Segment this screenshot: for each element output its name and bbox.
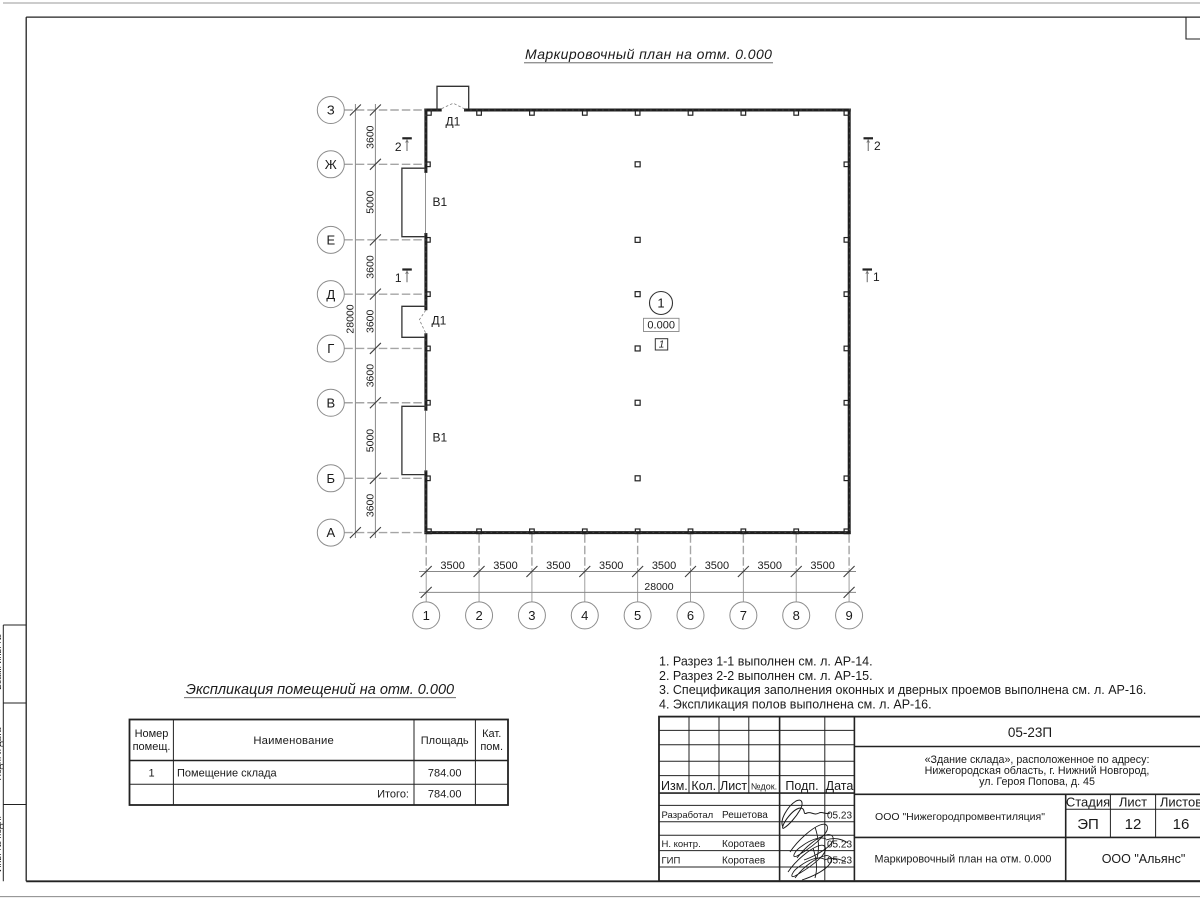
svg-text:6: 6	[687, 608, 694, 623]
svg-text:пом.: пом.	[480, 741, 503, 753]
svg-text:5000: 5000	[365, 429, 377, 453]
svg-text:ГИП: ГИП	[662, 855, 681, 866]
svg-text:5000: 5000	[365, 190, 377, 214]
svg-text:В1: В1	[433, 431, 448, 445]
svg-text:Стадия: Стадия	[1066, 795, 1110, 810]
svg-text:9: 9	[845, 608, 852, 623]
svg-text:28000: 28000	[644, 581, 673, 593]
svg-text:Помещение склада: Помещение склада	[177, 768, 278, 780]
svg-text:Кат.: Кат.	[482, 728, 501, 740]
svg-text:Е: Е	[326, 232, 335, 247]
svg-text:Д1: Д1	[432, 314, 447, 328]
svg-text:Разработал: Разработал	[662, 810, 714, 821]
svg-text:3600: 3600	[365, 309, 377, 333]
svg-text:Маркировочный план на отм. 0.0: Маркировочный план на отм. 0.000	[875, 854, 1052, 866]
svg-text:Лист: Лист	[720, 779, 747, 793]
svg-text:3500: 3500	[546, 560, 570, 572]
svg-text:Дата: Дата	[826, 779, 854, 793]
svg-text:Д1: Д1	[446, 115, 461, 129]
svg-text:Площадь: Площадь	[421, 735, 469, 747]
svg-text:Маркировочный план на отм. 0.0: Маркировочный план на отм. 0.000	[525, 46, 772, 62]
svg-text:3500: 3500	[758, 560, 782, 572]
svg-text:Н. контр.: Н. контр.	[662, 839, 701, 850]
svg-text:4. Экспликация полов выполнена: 4. Экспликация полов выполнена см. л. АР…	[659, 697, 932, 711]
svg-text:3500: 3500	[810, 560, 834, 572]
svg-text:3600: 3600	[365, 125, 377, 149]
svg-text:Ж: Ж	[325, 157, 337, 172]
svg-text:1: 1	[659, 340, 665, 351]
svg-text:8: 8	[793, 608, 800, 623]
svg-text:ООО "Нижегородпромвентиляция": ООО "Нижегородпромвентиляция"	[875, 811, 1045, 823]
svg-text:№док.: №док.	[751, 781, 777, 791]
svg-text:3500: 3500	[599, 560, 623, 572]
svg-text:Экспликация помещений на отм.: Экспликация помещений на отм. 0.000	[186, 682, 454, 698]
svg-text:Подп. и дата: Подп. и дата	[0, 727, 3, 780]
svg-text:А: А	[326, 525, 335, 540]
svg-text:3600: 3600	[365, 255, 377, 279]
svg-text:3600: 3600	[365, 364, 377, 388]
svg-text:помещ.: помещ.	[133, 741, 171, 753]
svg-text:Коротаев: Коротаев	[722, 855, 765, 866]
svg-text:Взам. инв. №: Взам. инв. №	[0, 634, 3, 690]
svg-text:2: 2	[475, 608, 482, 623]
svg-text:28000: 28000	[345, 304, 357, 333]
svg-text:3500: 3500	[652, 560, 676, 572]
svg-text:Д: Д	[326, 287, 335, 302]
svg-text:Изм.: Изм.	[661, 779, 688, 793]
svg-text:Решетова: Решетова	[722, 810, 768, 821]
svg-text:Подп.: Подп.	[785, 779, 818, 793]
svg-text:Г: Г	[327, 341, 334, 356]
svg-text:3500: 3500	[440, 560, 464, 572]
svg-text:Номер: Номер	[135, 728, 169, 740]
svg-text:784.00: 784.00	[428, 789, 462, 801]
svg-text:Лист: Лист	[1119, 795, 1147, 810]
svg-text:784.00: 784.00	[428, 768, 462, 780]
svg-text:1. Разрез 1-1 выполнен см. л.: 1. Разрез 1-1 выполнен см. л. АР-14.	[659, 655, 873, 669]
svg-text:1: 1	[423, 608, 430, 623]
svg-text:Инв. № подл.: Инв. № подл.	[0, 816, 3, 872]
svg-text:ул. Героя Попова, д. 45: ул. Героя Попова, д. 45	[979, 776, 1095, 788]
svg-text:Итого:: Итого:	[377, 789, 409, 801]
svg-text:7: 7	[740, 608, 747, 623]
svg-text:Б: Б	[327, 471, 336, 486]
svg-text:1: 1	[148, 768, 154, 780]
svg-text:3600: 3600	[365, 494, 377, 518]
svg-text:ЭП: ЭП	[1077, 816, 1099, 833]
svg-text:1: 1	[395, 271, 402, 285]
svg-text:0.000: 0.000	[647, 319, 675, 331]
svg-text:В: В	[326, 395, 335, 410]
svg-text:12: 12	[1125, 816, 1142, 833]
svg-text:ООО "Альянс": ООО "Альянс"	[1102, 852, 1186, 866]
svg-text:05-23П: 05-23П	[1008, 725, 1052, 740]
svg-text:2: 2	[874, 139, 881, 153]
svg-text:В1: В1	[433, 195, 448, 209]
svg-text:16: 16	[1173, 816, 1190, 833]
svg-text:Коротаев: Коротаев	[722, 839, 765, 850]
svg-text:Кол.: Кол.	[691, 779, 716, 793]
svg-text:4: 4	[581, 608, 588, 623]
svg-text:3. Спецификация заполнения око: 3. Спецификация заполнения оконных и две…	[659, 683, 1146, 697]
svg-text:3500: 3500	[705, 560, 729, 572]
svg-text:3: 3	[528, 608, 535, 623]
svg-text:2: 2	[395, 140, 402, 154]
svg-text:Листов: Листов	[1160, 795, 1200, 810]
svg-text:3500: 3500	[493, 560, 517, 572]
svg-text:1: 1	[873, 270, 880, 284]
svg-text:5: 5	[634, 608, 641, 623]
svg-text:2. Разрез 2-2 выполнен см. л.: 2. Разрез 2-2 выполнен см. л. АР-15.	[659, 669, 873, 683]
svg-text:05.23: 05.23	[827, 810, 852, 821]
svg-text:Наименование: Наименование	[253, 735, 334, 747]
svg-text:З: З	[327, 103, 335, 118]
svg-text:1: 1	[657, 296, 664, 311]
